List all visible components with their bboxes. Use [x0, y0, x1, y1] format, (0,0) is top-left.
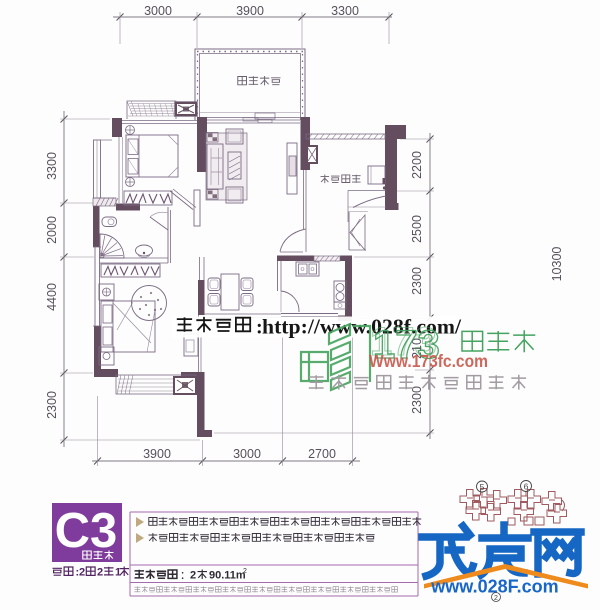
svg-text:2300: 2300: [410, 386, 424, 414]
svg-text:2: 2: [97, 567, 103, 579]
svg-text:3900: 3900: [236, 4, 264, 18]
svg-text:3000: 3000: [144, 4, 172, 18]
svg-text:3900: 3900: [143, 447, 171, 461]
svg-text:10300: 10300: [550, 247, 564, 282]
svg-text:3300: 3300: [45, 152, 59, 180]
svg-text:2: 2: [494, 595, 498, 602]
svg-text:3000: 3000: [233, 447, 261, 461]
svg-text:2: 2: [79, 567, 85, 579]
svg-text:5: 5: [480, 482, 485, 492]
svg-text:4400: 4400: [45, 283, 59, 311]
svg-text:Www.173fc.com: Www.173fc.com: [369, 351, 488, 371]
svg-text:www.028F.com: www.028F.com: [430, 577, 558, 597]
svg-text:2300: 2300: [410, 267, 424, 295]
svg-text:C3: C3: [55, 504, 118, 558]
svg-text:2: 2: [190, 570, 196, 582]
svg-text:6: 6: [524, 482, 529, 492]
svg-text:2700: 2700: [308, 447, 336, 461]
svg-text:：: ：: [180, 570, 191, 582]
svg-text:2: 2: [243, 568, 247, 575]
svg-text:90.11m: 90.11m: [209, 570, 246, 582]
svg-text:2000: 2000: [45, 216, 59, 244]
svg-text:2300: 2300: [45, 391, 59, 419]
svg-text:3300: 3300: [331, 4, 359, 18]
svg-text:2500: 2500: [410, 215, 424, 243]
svg-text:2200: 2200: [410, 151, 424, 179]
